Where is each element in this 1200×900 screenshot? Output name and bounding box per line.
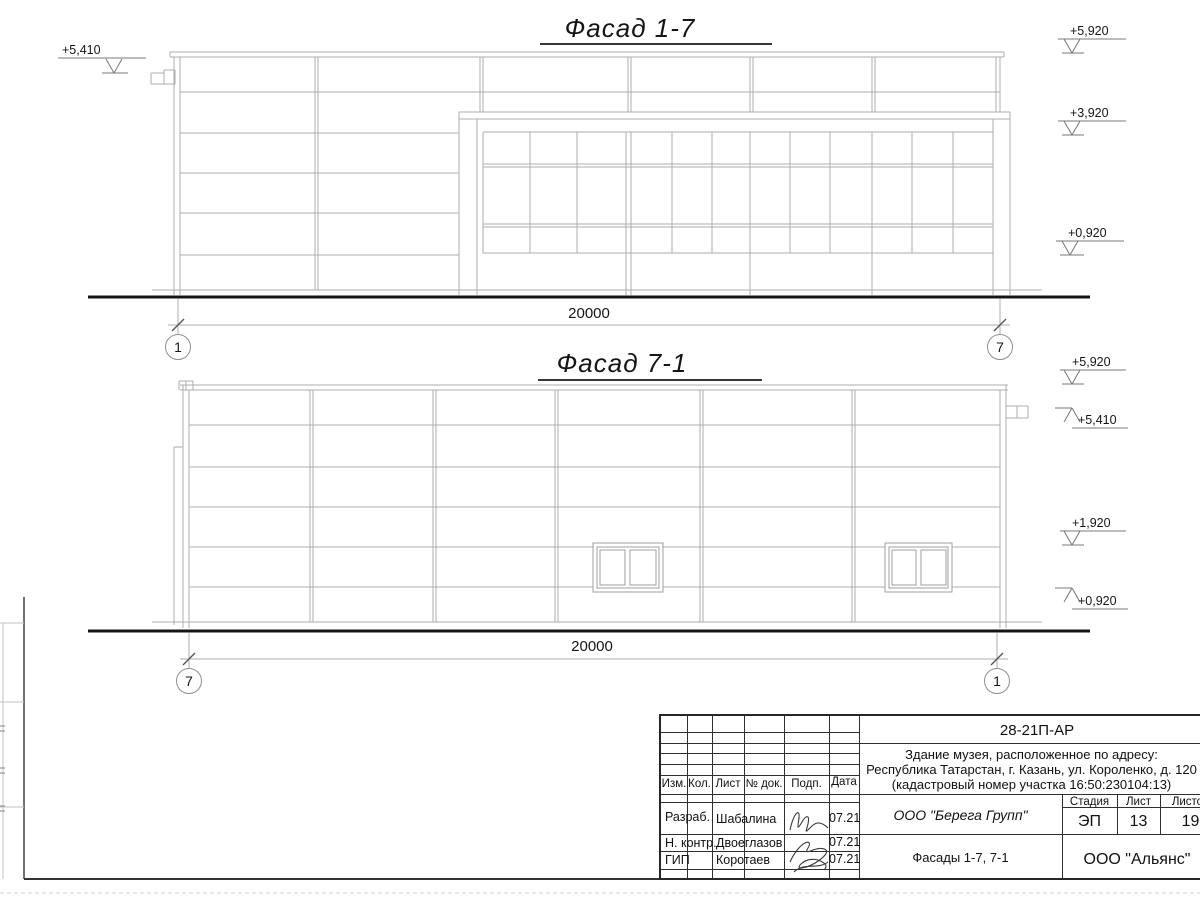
title-block: Изм. Кол. Лист № док. Подп. Дата Разраб.… xyxy=(659,714,1200,880)
tb-stage-value: ЭП xyxy=(1062,813,1117,831)
tb-name-1: Двоеглазов xyxy=(716,836,782,850)
tb-sheets-label: Листов xyxy=(1160,796,1200,808)
elevation-mark-icon xyxy=(1056,241,1124,255)
elevation-value: +5,410 xyxy=(1078,413,1117,427)
elevation-marker-right-4: +0,920 xyxy=(1055,588,1128,609)
tb-col-data: Дата xyxy=(829,776,859,788)
tb-line xyxy=(661,794,1200,795)
tb-col-izm: Изм. xyxy=(661,778,687,790)
tb-role-0: Разраб. xyxy=(665,810,710,824)
elevation-marker-right-1: +5,920 xyxy=(1060,355,1126,384)
elevation-value: +5,410 xyxy=(62,43,101,57)
elevation-value: +1,920 xyxy=(1072,516,1111,530)
drawing-sheet: Фасад 1-7 20000 1 7 +5,410 +5,920 xyxy=(0,0,1200,900)
tb-name-2: Коротаев xyxy=(716,853,770,867)
axis-bubble-left-label: 1 xyxy=(174,339,182,355)
tb-sheet-name: Фасады 1-7, 7-1 xyxy=(859,850,1062,865)
elevation-mark-icon xyxy=(1060,531,1126,545)
elevation-value: +5,920 xyxy=(1070,24,1109,38)
tb-line xyxy=(661,732,859,733)
tb-col-ndok: № док. xyxy=(744,778,784,790)
tb-date-2: 07.21 xyxy=(829,852,859,866)
elevation-value: +0,920 xyxy=(1078,594,1117,608)
elevation-marker-right-3: +0,920 xyxy=(1056,226,1124,255)
axis-bubble-right-label: 7 xyxy=(996,339,1004,355)
elevation-mark-icon xyxy=(1060,370,1126,384)
tb-date-1: 07.21 xyxy=(829,835,859,849)
tb-designer-company: ООО "Берега Групп" xyxy=(859,807,1062,823)
facade-7-1-view: Фасад 7-1 20000 7 1 xyxy=(88,348,1128,694)
tb-sheet-value: 13 xyxy=(1117,813,1160,831)
facade-1-7-title: Фасад 1-7 xyxy=(565,13,696,43)
window-1 xyxy=(593,543,663,592)
axis-bubble-left-label: 7 xyxy=(185,673,193,689)
tb-project-line1: Здание музея, расположенное по адресу: xyxy=(859,747,1200,762)
frame-filing-cells xyxy=(0,623,24,879)
tb-date-0: 07.21 xyxy=(829,811,859,825)
facade-1-7-dim-label: 20000 xyxy=(568,305,610,322)
tb-line xyxy=(712,716,713,878)
facade-7-1-building-lines xyxy=(152,381,1042,670)
facade-7-1-dim-label: 20000 xyxy=(571,638,613,655)
tb-role-1: Н. контр. xyxy=(665,836,717,850)
tb-line xyxy=(661,802,859,803)
signature-icon xyxy=(784,832,832,876)
tb-document-code: 28-21П-АР xyxy=(859,722,1200,739)
elevation-value: +3,920 xyxy=(1070,106,1109,120)
tb-sheets-value: 19 xyxy=(1160,813,1200,831)
tb-line xyxy=(661,764,859,765)
tb-sheet-label: Лист xyxy=(1117,796,1160,808)
facade-1-7-view: Фасад 1-7 20000 1 7 +5,410 +5,920 xyxy=(58,13,1126,360)
elevation-marker-left: +5,410 xyxy=(58,43,146,73)
facade-1-7-building-lines xyxy=(151,52,1042,336)
tb-project-line2: Республика Татарстан, г. Казань, ул. Кор… xyxy=(859,762,1200,777)
elevation-marker-right-3: +1,920 xyxy=(1060,516,1126,545)
tb-name-0: Шабалина xyxy=(716,812,776,826)
tb-col-list: Лист xyxy=(712,778,744,790)
facade-7-1-title: Фасад 7-1 xyxy=(557,348,688,378)
elevation-marker-right-2: +3,920 xyxy=(1058,106,1126,135)
tb-col-kol: Кол. xyxy=(687,778,712,790)
elevation-value: +5,920 xyxy=(1072,355,1111,369)
tb-stage-label: Стадия xyxy=(1062,796,1117,808)
elevation-mark-icon xyxy=(1058,39,1126,53)
tb-line xyxy=(661,743,1200,744)
window-2 xyxy=(885,543,952,592)
tb-line xyxy=(661,753,859,754)
elevation-marker-right-2: +5,410 xyxy=(1055,408,1128,428)
tb-client-company: ООО "Альянс" xyxy=(1062,851,1200,869)
elevation-marker-right-1: +5,920 xyxy=(1058,24,1126,53)
tb-role-2: ГИП xyxy=(665,853,690,867)
tb-line xyxy=(661,834,1200,835)
elevation-value: +0,920 xyxy=(1068,226,1107,240)
axis-bubble-right-label: 1 xyxy=(993,673,1001,689)
tb-col-podp: Подп. xyxy=(784,778,829,790)
elevation-mark-icon xyxy=(58,58,146,73)
elevation-mark-icon xyxy=(1058,121,1126,135)
tb-project-line3: (кадастровый номер участка 16:50:230104:… xyxy=(859,777,1200,792)
